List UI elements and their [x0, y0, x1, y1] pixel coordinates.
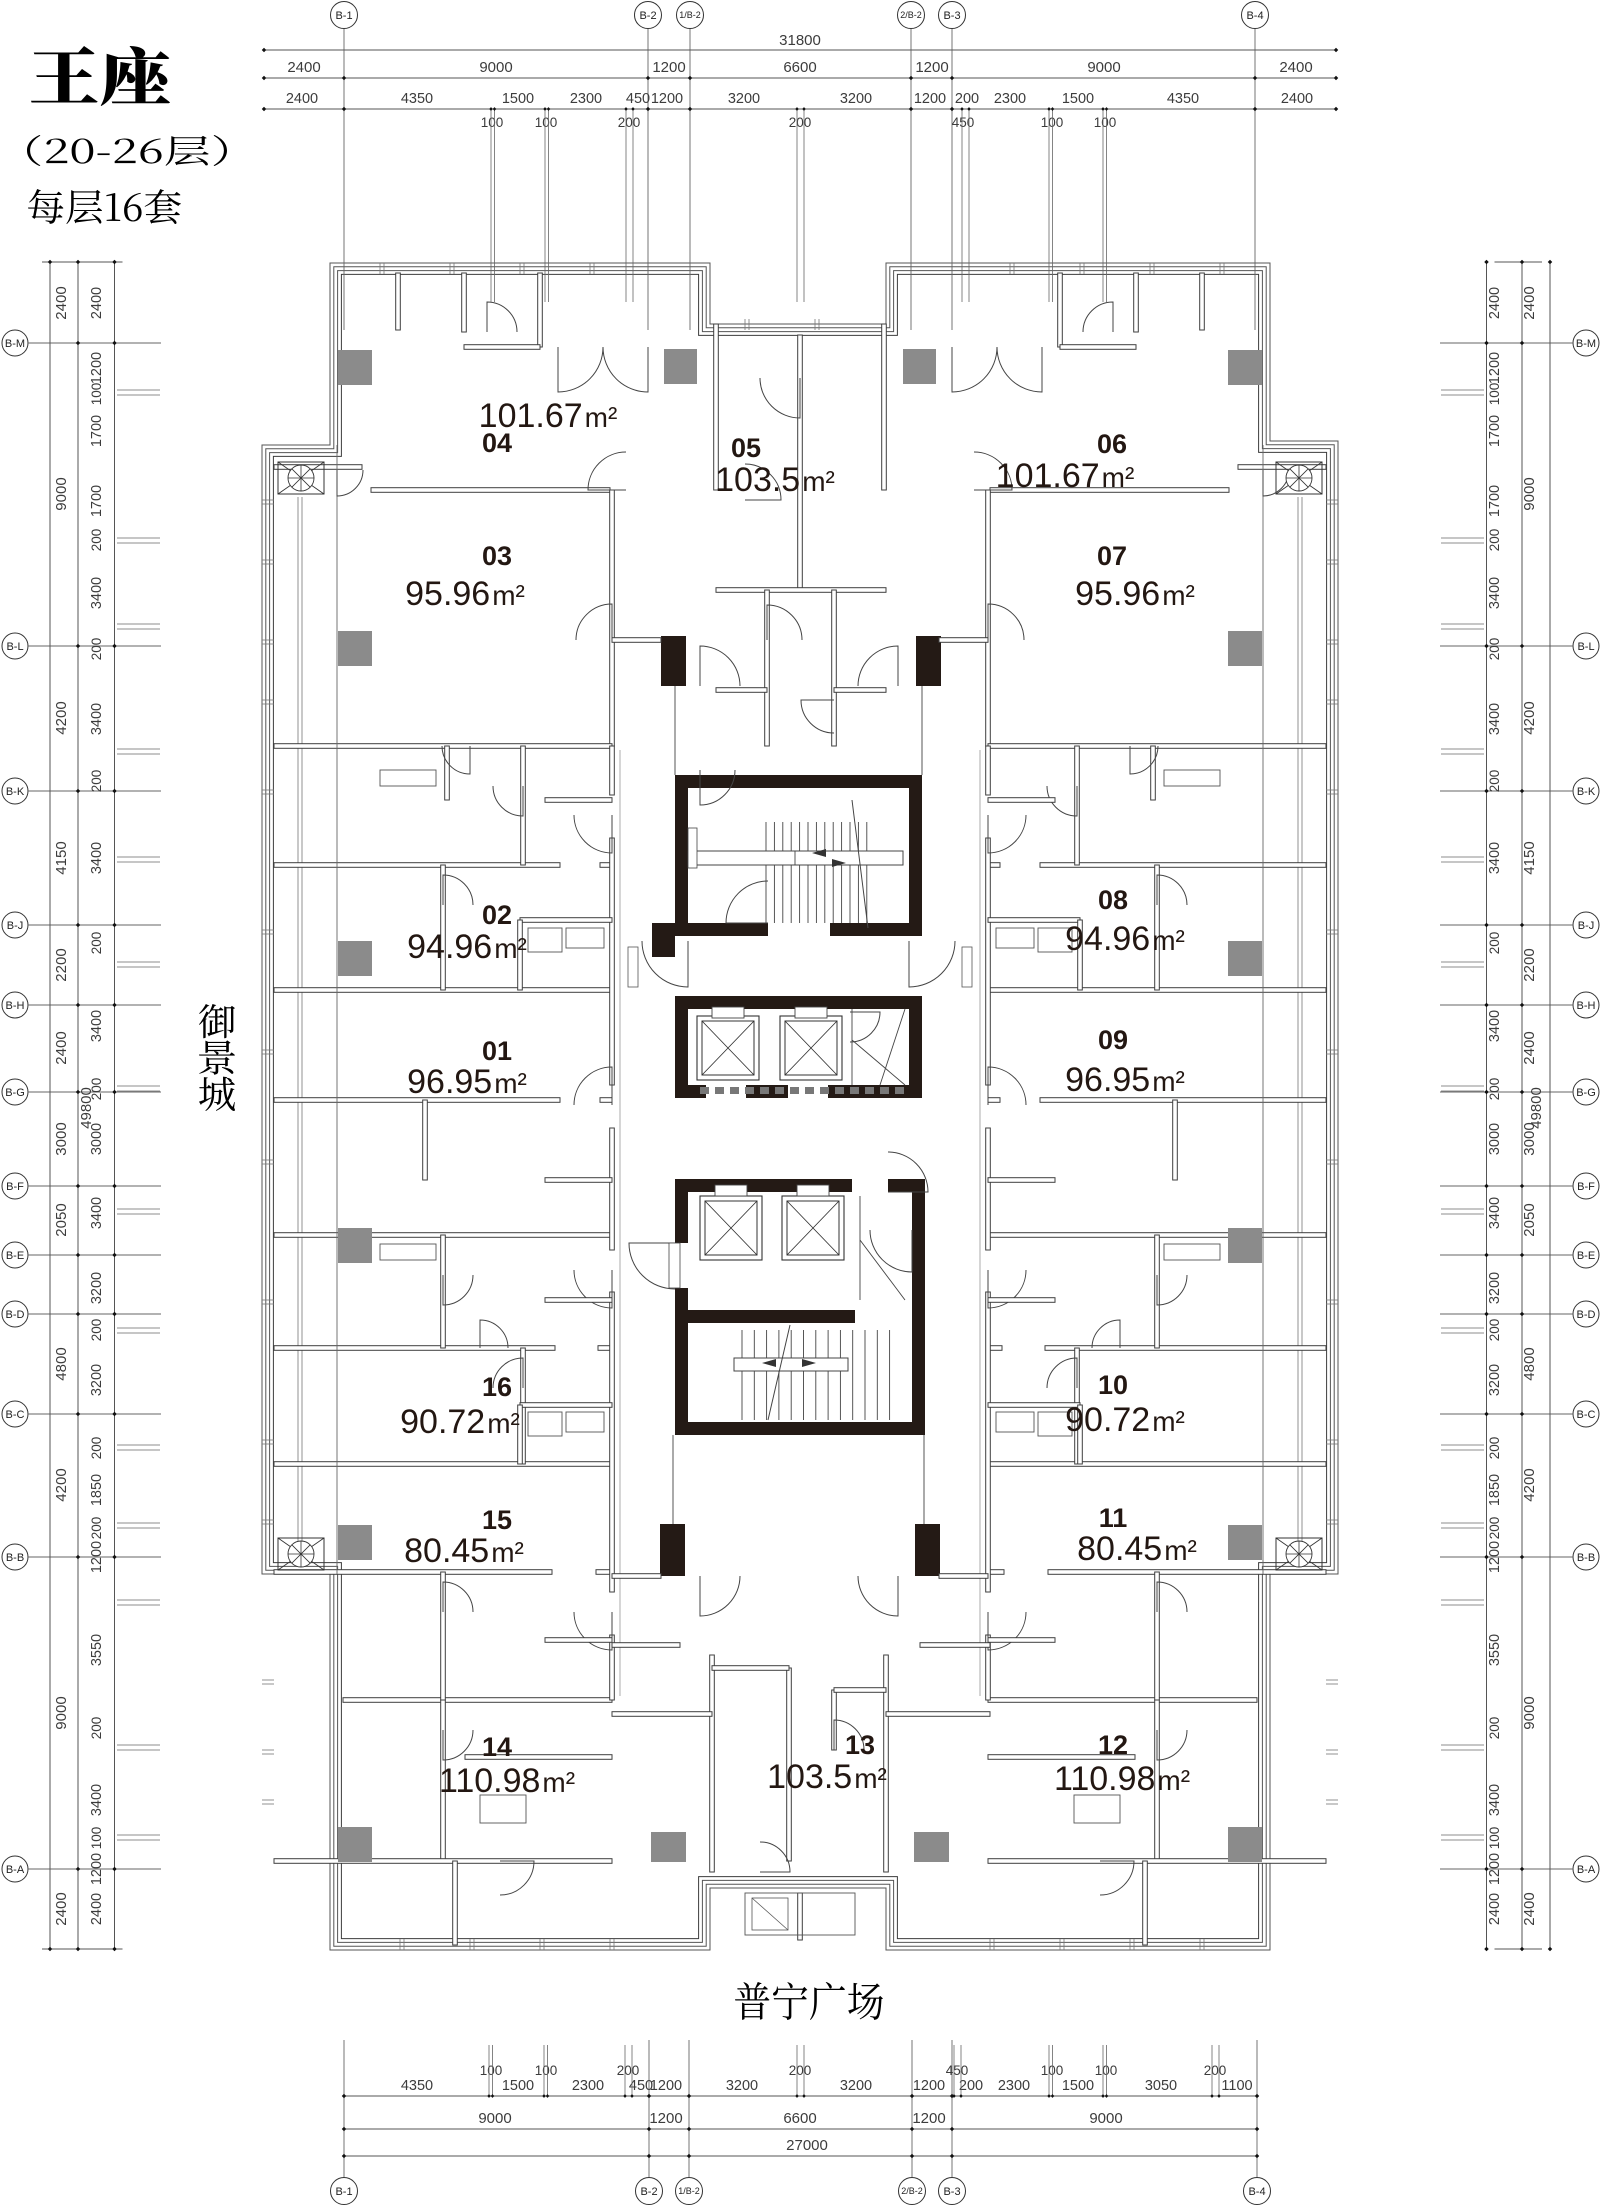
svg-text:3200: 3200 — [728, 91, 760, 107]
svg-text:95.96m²: 95.96m² — [405, 575, 525, 613]
svg-text:49800: 49800 — [1528, 1087, 1545, 1129]
svg-text:08: 08 — [1098, 885, 1128, 915]
svg-text:2400: 2400 — [1521, 286, 1538, 319]
svg-text:200: 200 — [89, 1437, 104, 1460]
svg-text:14: 14 — [482, 1732, 512, 1762]
svg-text:200: 200 — [1204, 2063, 1227, 2078]
svg-text:200: 200 — [1487, 1717, 1502, 1740]
svg-text:200: 200 — [789, 2063, 812, 2078]
svg-text:2400: 2400 — [89, 287, 105, 319]
svg-text:101.67m²: 101.67m² — [996, 457, 1135, 495]
svg-text:2400: 2400 — [286, 91, 318, 107]
svg-text:9000: 9000 — [1087, 59, 1120, 76]
svg-text:B-C: B-C — [1577, 1409, 1596, 1421]
svg-text:90.72m²: 90.72m² — [1065, 1401, 1185, 1439]
svg-text:9000: 9000 — [53, 477, 70, 510]
svg-text:450: 450 — [952, 115, 975, 130]
svg-text:80.45m²: 80.45m² — [1077, 1530, 1197, 1568]
svg-text:100: 100 — [480, 2063, 503, 2078]
svg-text:2/B-2: 2/B-2 — [900, 10, 922, 20]
svg-text:16: 16 — [482, 1372, 512, 1402]
svg-text:200: 200 — [617, 2063, 640, 2078]
svg-text:1850: 1850 — [1487, 1474, 1503, 1506]
svg-text:200: 200 — [959, 2078, 983, 2094]
svg-text:3200: 3200 — [1487, 1272, 1503, 1304]
svg-text:3200: 3200 — [840, 91, 872, 107]
svg-text:100: 100 — [89, 1827, 104, 1850]
svg-text:B-J: B-J — [7, 920, 24, 932]
svg-text:100: 100 — [89, 383, 104, 406]
svg-text:06: 06 — [1097, 429, 1127, 459]
svg-text:B-B: B-B — [6, 1552, 24, 1564]
svg-text:B-G: B-G — [5, 1087, 25, 1099]
svg-text:100: 100 — [1095, 2063, 1118, 2078]
svg-text:B-D: B-D — [1577, 1309, 1596, 1321]
svg-text:B-D: B-D — [6, 1309, 25, 1321]
svg-text:B-2: B-2 — [640, 2186, 657, 2198]
svg-text:6600: 6600 — [783, 59, 816, 76]
svg-text:2200: 2200 — [1521, 948, 1538, 981]
svg-text:1700: 1700 — [1487, 415, 1503, 447]
svg-text:96.95m²: 96.95m² — [407, 1063, 527, 1101]
svg-text:3200: 3200 — [726, 2078, 758, 2094]
svg-text:450: 450 — [946, 2063, 969, 2078]
svg-text:9000: 9000 — [479, 59, 512, 76]
svg-text:3400: 3400 — [1487, 1010, 1503, 1042]
svg-text:100: 100 — [1094, 115, 1117, 130]
svg-text:3200: 3200 — [89, 1272, 105, 1304]
svg-text:03: 03 — [482, 541, 512, 571]
svg-text:B-4: B-4 — [1246, 10, 1263, 22]
svg-text:B-L: B-L — [6, 641, 23, 653]
svg-text:100: 100 — [1041, 115, 1064, 130]
svg-text:96.95m²: 96.95m² — [1065, 1061, 1185, 1099]
svg-text:1200: 1200 — [89, 1541, 105, 1573]
svg-text:B-H: B-H — [6, 1000, 25, 1012]
svg-text:10: 10 — [1098, 1370, 1128, 1400]
svg-text:3400: 3400 — [89, 1010, 105, 1042]
svg-text:2050: 2050 — [1521, 1203, 1538, 1236]
svg-text:1200: 1200 — [651, 91, 683, 107]
svg-text:13: 13 — [845, 1730, 875, 1760]
svg-text:4800: 4800 — [1521, 1347, 1538, 1380]
svg-text:200: 200 — [789, 115, 812, 130]
svg-text:3400: 3400 — [1487, 703, 1503, 735]
svg-text:09: 09 — [1098, 1025, 1128, 1055]
svg-text:1200: 1200 — [913, 2078, 945, 2094]
svg-text:4200: 4200 — [53, 1468, 70, 1501]
svg-text:100: 100 — [535, 115, 558, 130]
svg-text:4800: 4800 — [53, 1347, 70, 1380]
svg-text:2300: 2300 — [570, 91, 602, 107]
svg-text:B-F: B-F — [1577, 1181, 1595, 1193]
svg-text:200: 200 — [89, 638, 104, 661]
svg-text:1200: 1200 — [652, 59, 685, 76]
svg-text:1200: 1200 — [912, 2110, 945, 2127]
svg-text:200: 200 — [89, 529, 104, 552]
svg-text:B-M: B-M — [1576, 338, 1596, 350]
svg-text:1200: 1200 — [649, 2110, 682, 2127]
svg-text:200: 200 — [1487, 529, 1502, 552]
svg-text:3200: 3200 — [89, 1364, 105, 1396]
svg-text:200: 200 — [618, 115, 641, 130]
svg-text:1500: 1500 — [502, 91, 534, 107]
svg-text:2200: 2200 — [53, 948, 70, 981]
svg-text:100: 100 — [1487, 1827, 1502, 1850]
svg-text:B-K: B-K — [1577, 786, 1596, 798]
svg-text:B-4: B-4 — [1248, 2186, 1265, 2198]
svg-text:3400: 3400 — [89, 842, 105, 874]
svg-text:2400: 2400 — [1487, 287, 1503, 319]
svg-text:80.45m²: 80.45m² — [404, 1532, 524, 1570]
svg-text:3200: 3200 — [1487, 1364, 1503, 1396]
svg-text:200: 200 — [1487, 1078, 1502, 1101]
svg-text:05: 05 — [731, 433, 761, 463]
svg-text:1850: 1850 — [89, 1474, 105, 1506]
svg-text:B-3: B-3 — [943, 2186, 960, 2198]
svg-text:100: 100 — [481, 115, 504, 130]
svg-text:103.5m²: 103.5m² — [767, 1758, 887, 1796]
svg-text:200: 200 — [955, 91, 979, 107]
svg-text:01: 01 — [482, 1036, 512, 1066]
svg-text:07: 07 — [1097, 541, 1127, 571]
svg-text:B-2: B-2 — [639, 10, 656, 22]
svg-text:1200: 1200 — [89, 1853, 105, 1885]
svg-text:2300: 2300 — [572, 2078, 604, 2094]
svg-text:3400: 3400 — [89, 1784, 105, 1816]
svg-text:1/B-2: 1/B-2 — [679, 10, 701, 20]
svg-text:103.5m²: 103.5m² — [715, 461, 835, 499]
svg-text:B-F: B-F — [6, 1181, 24, 1193]
svg-text:101.67m²: 101.67m² — [479, 397, 618, 435]
svg-text:2400: 2400 — [1521, 1031, 1538, 1064]
svg-text:B-K: B-K — [6, 786, 25, 798]
svg-text:1200: 1200 — [1487, 352, 1503, 384]
svg-text:4350: 4350 — [1167, 91, 1199, 107]
svg-text:B-3: B-3 — [943, 10, 960, 22]
svg-text:3000: 3000 — [53, 1122, 70, 1155]
svg-text:9000: 9000 — [1089, 2110, 1122, 2127]
svg-text:450: 450 — [626, 91, 650, 107]
svg-text:11: 11 — [1099, 1503, 1128, 1533]
svg-text:1500: 1500 — [1062, 91, 1094, 107]
svg-text:9000: 9000 — [1521, 1696, 1538, 1729]
svg-text:2300: 2300 — [994, 91, 1026, 107]
svg-text:B-H: B-H — [1577, 1000, 1596, 1012]
svg-text:1200: 1200 — [914, 91, 946, 107]
svg-text:2400: 2400 — [53, 1892, 70, 1925]
svg-text:B-A: B-A — [6, 1864, 25, 1876]
svg-text:200: 200 — [1487, 1437, 1502, 1460]
svg-text:12: 12 — [1098, 1730, 1128, 1760]
svg-text:2300: 2300 — [998, 2078, 1030, 2094]
svg-text:200: 200 — [1487, 770, 1502, 793]
svg-text:1100: 1100 — [1221, 2078, 1252, 2094]
svg-text:110.98m²: 110.98m² — [439, 1762, 575, 1800]
svg-text:B-A: B-A — [1577, 1864, 1596, 1876]
svg-text:6600: 6600 — [783, 2110, 816, 2127]
svg-text:100: 100 — [535, 2063, 558, 2078]
svg-text:200: 200 — [1487, 638, 1502, 661]
svg-text:2050: 2050 — [53, 1203, 70, 1236]
svg-text:4200: 4200 — [1521, 1468, 1538, 1501]
svg-text:3400: 3400 — [89, 577, 105, 609]
svg-text:B-G: B-G — [1576, 1087, 1596, 1099]
svg-text:2/B-2: 2/B-2 — [901, 2186, 923, 2196]
svg-text:3400: 3400 — [89, 1197, 105, 1229]
svg-text:B-M: B-M — [5, 338, 25, 350]
svg-text:B-B: B-B — [1577, 1552, 1595, 1564]
svg-text:4350: 4350 — [401, 91, 433, 107]
svg-text:3400: 3400 — [1487, 1784, 1503, 1816]
svg-text:2400: 2400 — [1487, 1893, 1503, 1925]
svg-text:1200: 1200 — [650, 2078, 682, 2094]
svg-text:3400: 3400 — [1487, 577, 1503, 609]
svg-text:3400: 3400 — [1487, 1197, 1503, 1229]
svg-text:B-1: B-1 — [335, 2186, 352, 2198]
svg-text:200: 200 — [89, 1517, 104, 1540]
svg-text:2400: 2400 — [1281, 91, 1313, 107]
svg-text:200: 200 — [1487, 1319, 1502, 1342]
svg-text:4150: 4150 — [1521, 841, 1538, 874]
svg-text:27000: 27000 — [786, 2137, 828, 2154]
svg-text:1700: 1700 — [89, 485, 105, 517]
svg-text:1500: 1500 — [502, 2078, 534, 2094]
svg-text:3400: 3400 — [1487, 842, 1503, 874]
svg-text:3400: 3400 — [89, 703, 105, 735]
svg-text:31800: 31800 — [779, 32, 821, 49]
svg-text:B-J: B-J — [1578, 920, 1595, 932]
svg-text:200: 200 — [1487, 932, 1502, 955]
svg-text:4200: 4200 — [53, 701, 70, 734]
svg-text:200: 200 — [89, 1319, 104, 1342]
svg-text:1200: 1200 — [1487, 1541, 1503, 1573]
svg-text:2400: 2400 — [89, 1893, 105, 1925]
svg-text:B-C: B-C — [6, 1409, 25, 1421]
svg-text:02: 02 — [482, 900, 512, 930]
svg-text:100: 100 — [1041, 2063, 1064, 2078]
svg-text:1700: 1700 — [89, 415, 105, 447]
svg-text:9000: 9000 — [53, 1696, 70, 1729]
svg-text:3550: 3550 — [1487, 1634, 1503, 1666]
svg-text:9000: 9000 — [478, 2110, 511, 2127]
svg-text:95.96m²: 95.96m² — [1075, 575, 1195, 613]
svg-text:1200: 1200 — [915, 59, 948, 76]
svg-text:200: 200 — [89, 1717, 104, 1740]
svg-text:200: 200 — [89, 770, 104, 793]
svg-text:B-1: B-1 — [335, 10, 352, 22]
svg-text:9000: 9000 — [1521, 477, 1538, 510]
svg-text:90.72m²: 90.72m² — [400, 1403, 520, 1441]
svg-text:94.96m²: 94.96m² — [407, 928, 527, 966]
svg-text:100: 100 — [1487, 383, 1502, 406]
svg-text:2400: 2400 — [53, 286, 70, 319]
svg-text:2400: 2400 — [1521, 1892, 1538, 1925]
svg-text:3050: 3050 — [1145, 2078, 1177, 2094]
svg-text:1700: 1700 — [1487, 485, 1503, 517]
svg-text:1200: 1200 — [1487, 1853, 1503, 1885]
svg-text:3000: 3000 — [1487, 1123, 1503, 1155]
svg-text:4200: 4200 — [1521, 701, 1538, 734]
svg-text:1200: 1200 — [89, 352, 105, 384]
svg-text:94.96m²: 94.96m² — [1065, 920, 1185, 958]
svg-text:4350: 4350 — [401, 2078, 433, 2094]
svg-text:2400: 2400 — [287, 59, 320, 76]
svg-text:2400: 2400 — [1279, 59, 1312, 76]
svg-text:3200: 3200 — [840, 2078, 872, 2094]
svg-text:B-E: B-E — [6, 1250, 24, 1262]
svg-text:3550: 3550 — [89, 1634, 105, 1666]
svg-text:4150: 4150 — [53, 841, 70, 874]
svg-text:B-E: B-E — [1577, 1250, 1595, 1262]
svg-text:B-L: B-L — [1577, 641, 1594, 653]
svg-text:2400: 2400 — [53, 1031, 70, 1064]
svg-text:1/B-2: 1/B-2 — [678, 2186, 700, 2196]
svg-text:49800: 49800 — [78, 1087, 95, 1129]
svg-text:110.98m²: 110.98m² — [1054, 1760, 1190, 1798]
svg-text:200: 200 — [1487, 1517, 1502, 1540]
svg-text:200: 200 — [89, 932, 104, 955]
svg-text:15: 15 — [482, 1505, 512, 1535]
svg-text:1500: 1500 — [1062, 2078, 1094, 2094]
